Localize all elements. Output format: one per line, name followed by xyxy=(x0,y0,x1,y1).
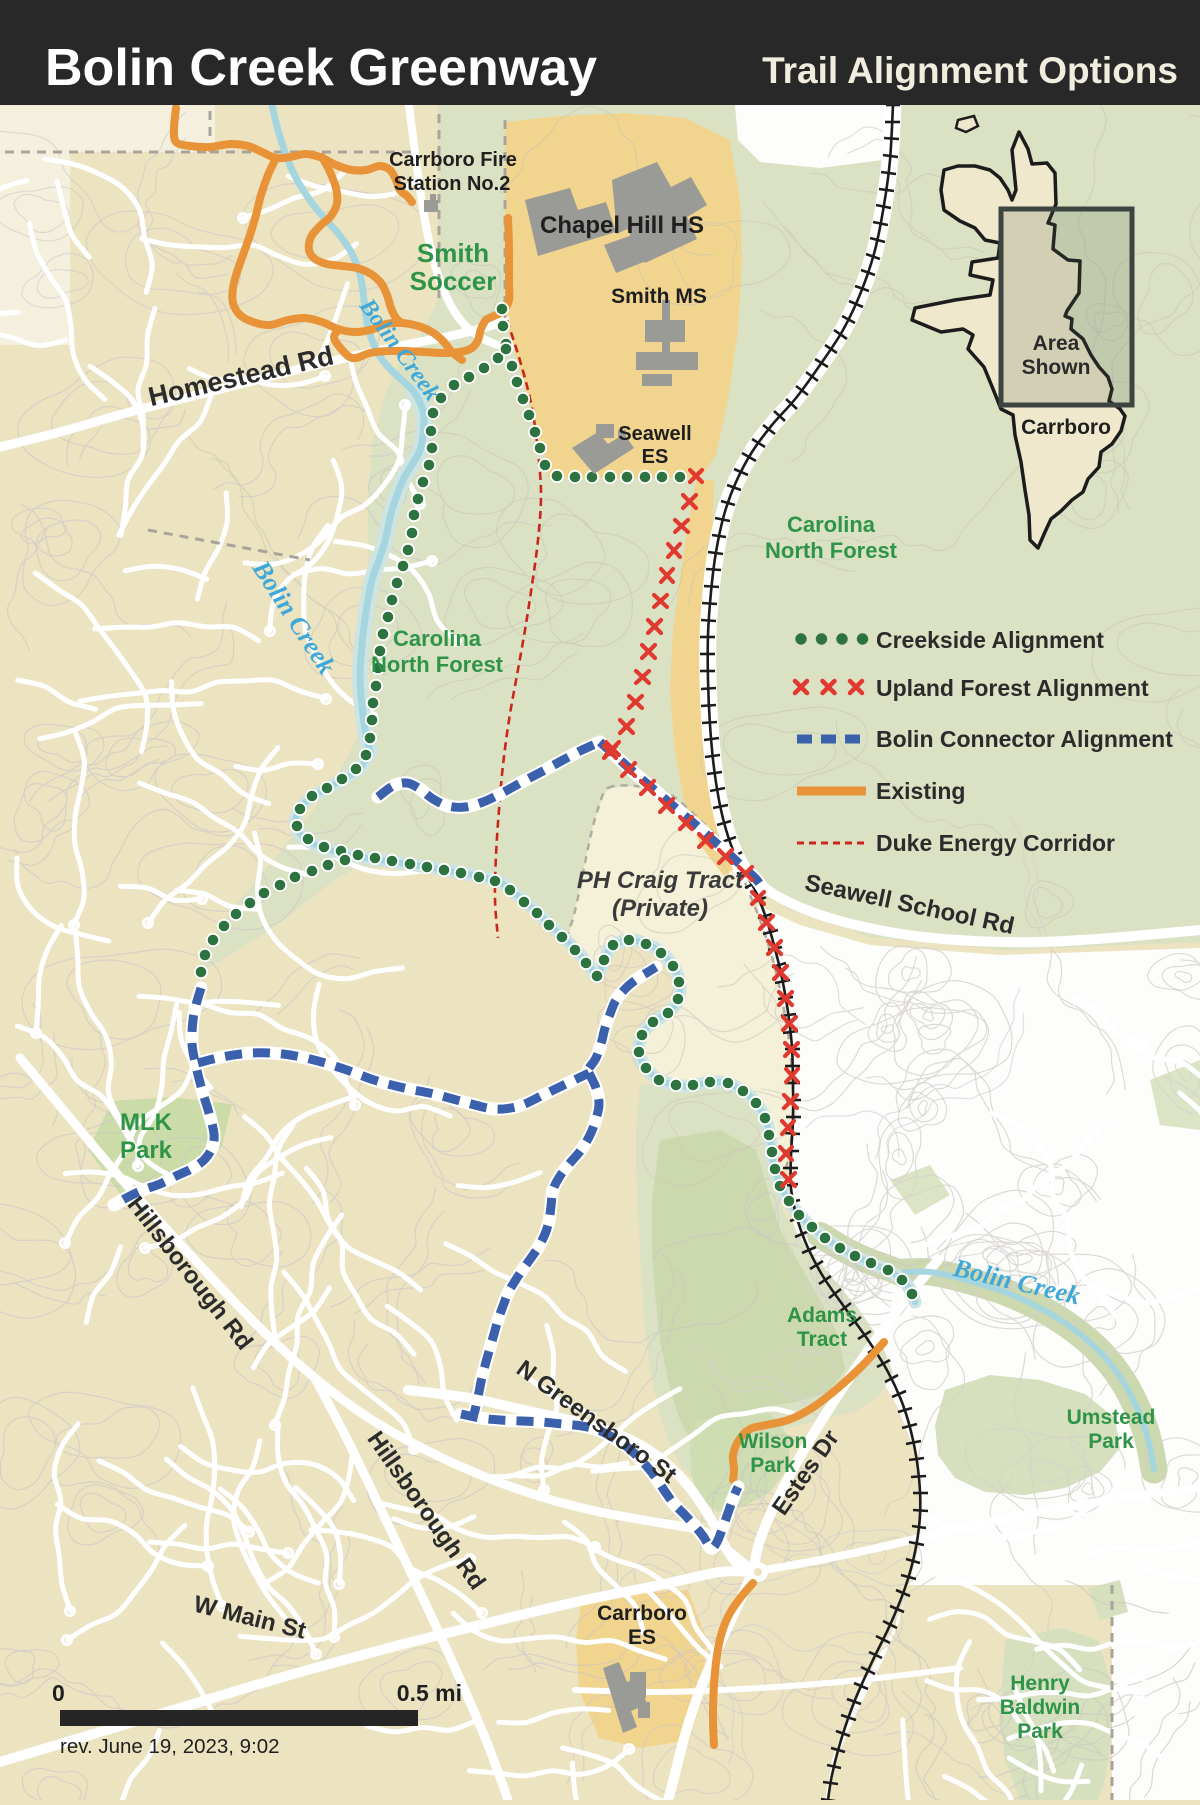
svg-text:MLK: MLK xyxy=(120,1109,173,1136)
svg-text:Tract: Tract xyxy=(797,1328,847,1351)
svg-text:Area: Area xyxy=(1033,332,1080,355)
svg-text:Park: Park xyxy=(120,1137,173,1164)
svg-text:Park: Park xyxy=(1017,1720,1063,1743)
svg-text:Shown: Shown xyxy=(1022,356,1091,379)
svg-text:Upland Forest Alignment: Upland Forest Alignment xyxy=(876,675,1149,701)
svg-text:0.5 mi: 0.5 mi xyxy=(397,1680,462,1706)
svg-text:Henry: Henry xyxy=(1010,1672,1070,1695)
svg-text:Trail Alignment Options: Trail Alignment Options xyxy=(762,50,1178,91)
svg-text:North Forest: North Forest xyxy=(371,652,504,677)
svg-text:Park: Park xyxy=(1088,1430,1134,1453)
svg-text:0: 0 xyxy=(52,1680,65,1706)
svg-text:Baldwin: Baldwin xyxy=(1000,1696,1081,1719)
svg-text:PH Craig Tract: PH Craig Tract xyxy=(577,867,744,894)
svg-text:Carrboro: Carrboro xyxy=(597,1602,687,1625)
svg-text:Soccer: Soccer xyxy=(410,266,497,296)
svg-text:Carrboro Fire: Carrboro Fire xyxy=(389,149,517,171)
svg-text:Adams: Adams xyxy=(787,1304,857,1327)
svg-text:Umstead: Umstead xyxy=(1067,1406,1156,1429)
svg-text:Smith MS: Smith MS xyxy=(611,285,707,308)
svg-text:rev. June 19, 2023, 9:02: rev. June 19, 2023, 9:02 xyxy=(60,1735,280,1758)
svg-text:Creekside Alignment: Creekside Alignment xyxy=(876,627,1104,653)
svg-text:Bolin Connector Alignment: Bolin Connector Alignment xyxy=(876,726,1173,752)
svg-text:Carolina: Carolina xyxy=(393,626,482,651)
svg-text:ES: ES xyxy=(628,1626,656,1649)
svg-text:Chapel Hill HS: Chapel Hill HS xyxy=(540,212,704,239)
svg-text:Wilson: Wilson xyxy=(739,1430,808,1453)
svg-text:Existing: Existing xyxy=(876,778,965,804)
svg-text:Station No.2: Station No.2 xyxy=(394,173,511,195)
svg-text:Seawell: Seawell xyxy=(618,423,691,445)
svg-text:North Forest: North Forest xyxy=(765,538,898,563)
svg-text:Smith: Smith xyxy=(417,238,489,268)
svg-text:(Private): (Private) xyxy=(612,895,708,922)
svg-text:Bolin Creek Greenway: Bolin Creek Greenway xyxy=(45,39,597,97)
svg-text:ES: ES xyxy=(642,446,669,468)
svg-text:Duke Energy Corridor: Duke Energy Corridor xyxy=(876,830,1115,856)
svg-text:Carolina: Carolina xyxy=(787,512,876,537)
svg-text:Carrboro: Carrboro xyxy=(1021,416,1111,439)
